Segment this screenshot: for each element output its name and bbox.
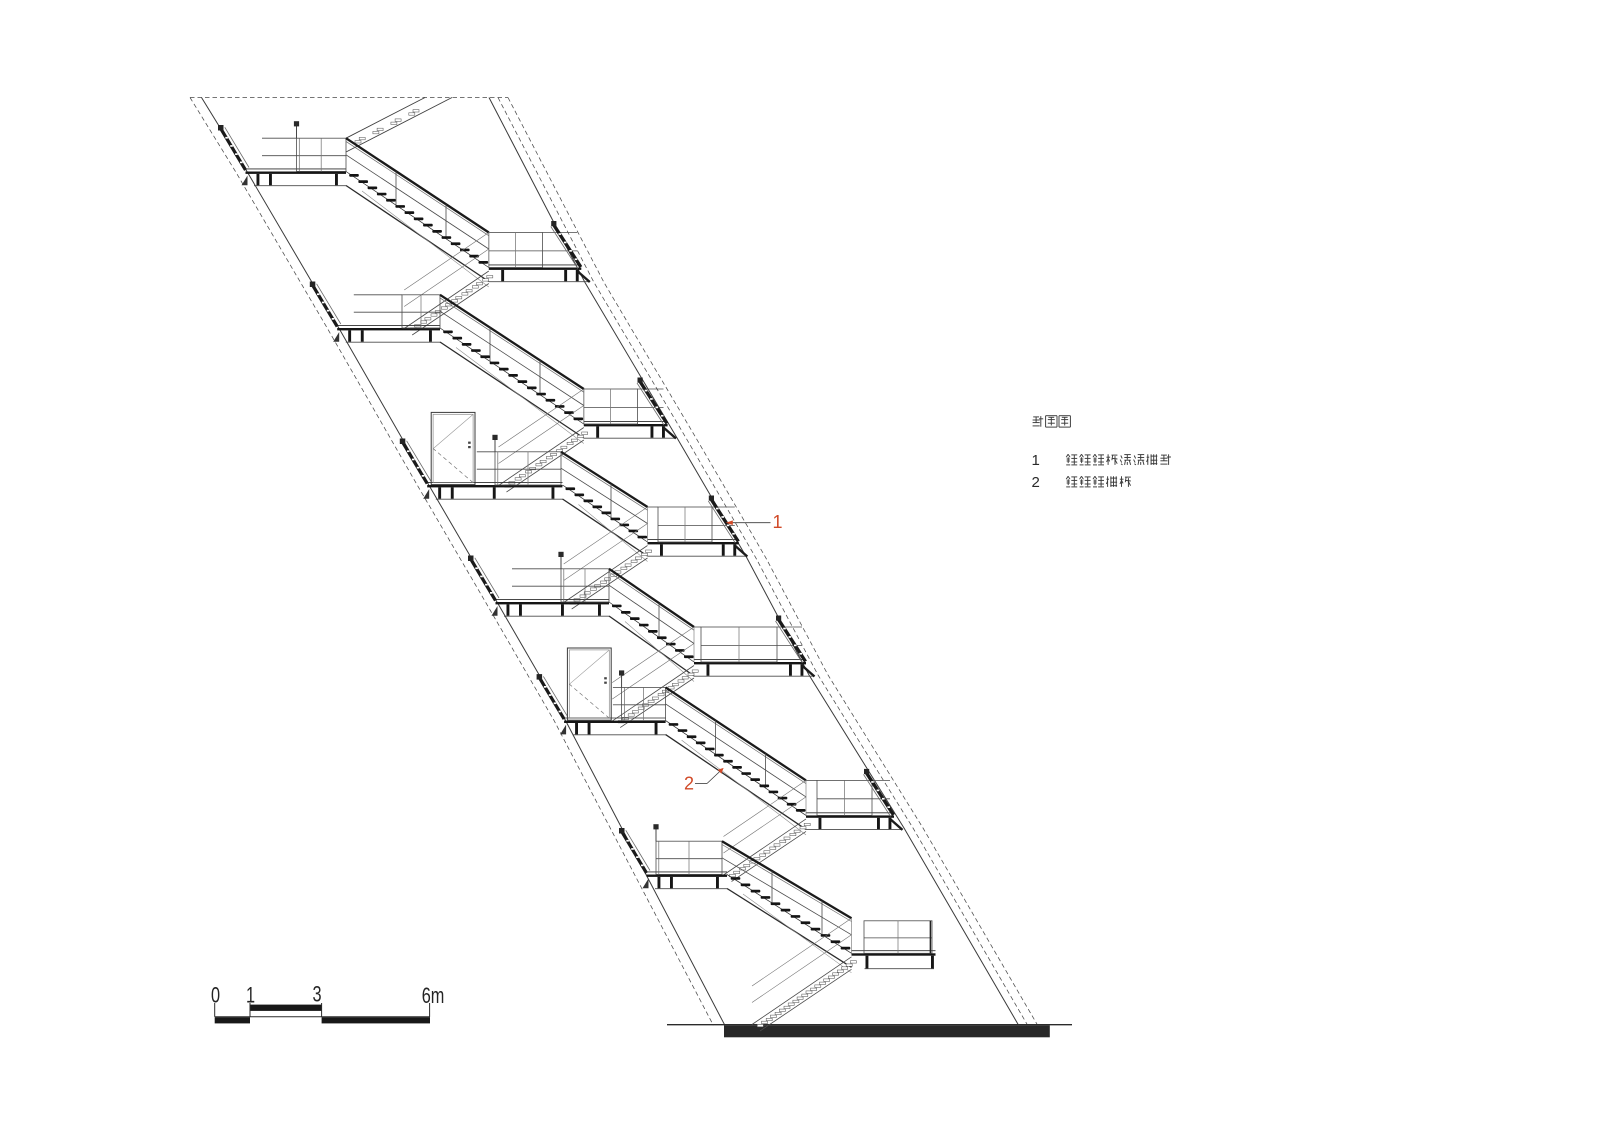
- svg-text:2: 2: [1032, 474, 1040, 491]
- svg-text:6m: 6m: [422, 984, 445, 1009]
- svg-text:3: 3: [312, 982, 321, 1007]
- svg-text:1: 1: [246, 983, 255, 1008]
- svg-text:0: 0: [211, 983, 220, 1008]
- svg-text:1: 1: [1032, 452, 1040, 469]
- svg-text:1: 1: [773, 512, 783, 532]
- svg-text:2: 2: [684, 773, 694, 793]
